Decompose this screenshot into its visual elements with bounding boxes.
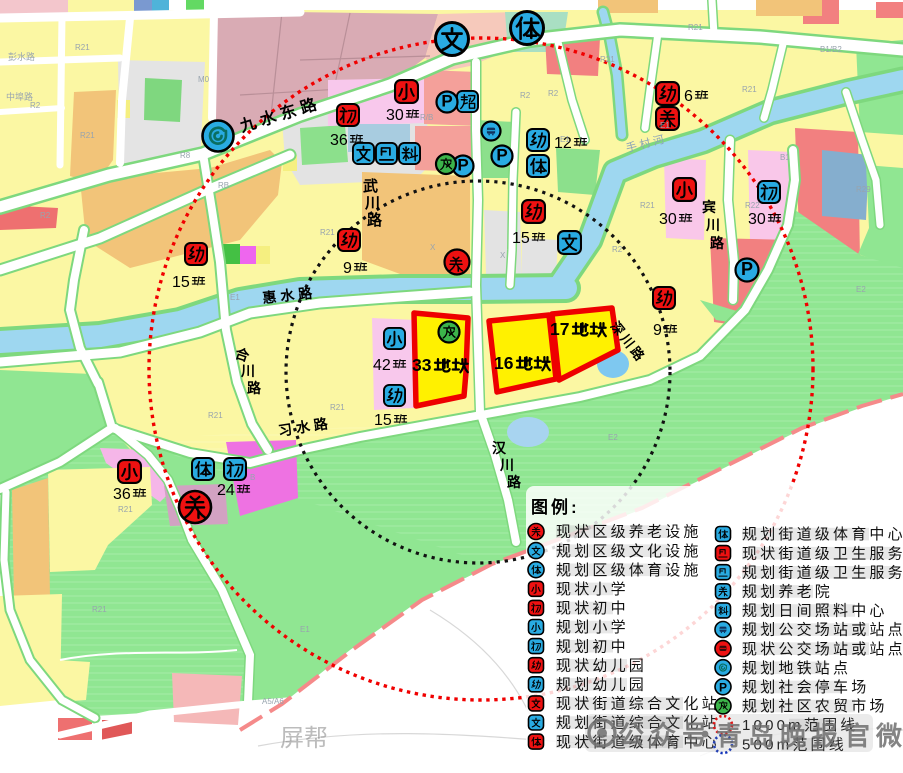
svg-text:中埠路: 中埠路 xyxy=(6,91,33,102)
svg-text:E1: E1 xyxy=(560,135,570,144)
svg-text:R21: R21 xyxy=(330,403,345,412)
svg-text:规划区级文化设施: 规划区级文化设施 xyxy=(556,543,702,560)
svg-text:X: X xyxy=(430,243,436,252)
svg-text:武: 武 xyxy=(363,177,378,195)
svg-text:规划幼儿园: 规划幼儿园 xyxy=(556,677,647,694)
svg-text:屏帮: 屏帮 xyxy=(280,725,328,752)
svg-text:30: 30 xyxy=(748,211,766,228)
svg-text:42: 42 xyxy=(373,357,391,374)
svg-text:P: P xyxy=(457,155,468,174)
svg-text:E1: E1 xyxy=(230,293,240,302)
svg-text:15: 15 xyxy=(512,230,530,247)
svg-text:R21: R21 xyxy=(742,85,757,94)
svg-text:R21: R21 xyxy=(92,605,107,614)
svg-text:B1: B1 xyxy=(780,153,790,162)
svg-text:现状初中: 现状初中 xyxy=(556,600,629,617)
svg-text:R2: R2 xyxy=(612,245,623,254)
svg-text:16: 16 xyxy=(494,353,514,373)
svg-text:R2: R2 xyxy=(548,89,559,98)
svg-text:R2: R2 xyxy=(30,101,41,110)
svg-text:川: 川 xyxy=(240,363,255,379)
svg-text:B: B xyxy=(250,473,255,482)
svg-text:汉: 汉 xyxy=(492,440,507,456)
svg-text:R21: R21 xyxy=(640,201,655,210)
svg-text:规划社区农贸市场: 规划社区农贸市场 xyxy=(742,698,888,715)
svg-text:P: P xyxy=(741,259,753,279)
svg-text:R21: R21 xyxy=(80,131,95,140)
svg-text:36: 36 xyxy=(330,132,348,149)
svg-text:公众号: 公众号 xyxy=(618,720,714,750)
svg-text:24: 24 xyxy=(217,482,235,499)
svg-text:E2: E2 xyxy=(856,285,866,294)
svg-text:规划初中: 规划初中 xyxy=(556,638,629,655)
svg-text:E2: E2 xyxy=(608,433,618,442)
svg-text:B1/B2: B1/B2 xyxy=(820,45,842,54)
svg-text:30: 30 xyxy=(386,107,404,124)
svg-text:9: 9 xyxy=(343,260,352,277)
svg-text:规划日间照料中心: 规划日间照料中心 xyxy=(742,603,888,620)
svg-text:川: 川 xyxy=(499,457,514,473)
svg-text:规划区级体育设施: 规划区级体育设施 xyxy=(556,562,702,579)
svg-text:川: 川 xyxy=(364,195,380,212)
svg-text:36: 36 xyxy=(113,486,131,503)
svg-text:现状小学: 现状小学 xyxy=(556,581,629,598)
svg-text:规划社会停车场: 规划社会停车场 xyxy=(742,679,869,696)
svg-text:规划公交场站或站点: 规划公交场站或站点 xyxy=(742,621,903,639)
svg-text:R2: R2 xyxy=(40,211,51,220)
svg-text:彭水路: 彭水路 xyxy=(8,51,35,62)
svg-text:9: 9 xyxy=(653,322,662,339)
svg-text:现状区级养老设施: 现状区级养老设施 xyxy=(556,524,702,541)
svg-text:R21: R21 xyxy=(320,228,335,237)
svg-text:E1: E1 xyxy=(660,121,670,130)
svg-text:规划小学: 规划小学 xyxy=(556,619,629,636)
svg-text:P: P xyxy=(441,91,452,110)
svg-text:青岛晚报官微: 青岛晚报官微 xyxy=(716,721,903,751)
svg-text:R/B: R/B xyxy=(420,113,433,122)
svg-text:R29: R29 xyxy=(856,185,871,194)
svg-text:M0: M0 xyxy=(198,75,210,84)
svg-text:规划地铁站点: 规划地铁站点 xyxy=(742,660,851,677)
svg-text:R2: R2 xyxy=(520,91,531,100)
svg-text:33: 33 xyxy=(412,355,432,375)
svg-text:现状幼儿园: 现状幼儿园 xyxy=(556,657,647,674)
svg-text:15: 15 xyxy=(374,412,392,429)
svg-text:15: 15 xyxy=(172,274,190,291)
svg-text:规划养老院: 规划养老院 xyxy=(742,583,833,601)
svg-text:图例:: 图例: xyxy=(531,497,580,517)
svg-text:P: P xyxy=(719,680,727,694)
svg-text:X: X xyxy=(500,251,506,260)
svg-text:R21: R21 xyxy=(600,55,615,64)
svg-text:川: 川 xyxy=(705,217,720,233)
svg-text:规划街道级卫生服务中心: 规划街道级卫生服务中心 xyxy=(742,564,903,581)
svg-text:RB: RB xyxy=(218,181,229,190)
svg-text:宾: 宾 xyxy=(702,199,716,215)
svg-text:现状公交场站或站点: 现状公交场站或站点 xyxy=(742,640,903,658)
svg-text:30: 30 xyxy=(659,211,677,228)
svg-text:路: 路 xyxy=(507,474,522,490)
svg-text:路: 路 xyxy=(710,235,725,251)
svg-text:P: P xyxy=(496,145,507,164)
svg-text:R21: R21 xyxy=(118,505,133,514)
svg-text:规划街道级体育中心: 规划街道级体育中心 xyxy=(742,526,903,543)
svg-text:E1: E1 xyxy=(300,625,310,634)
svg-text:R21: R21 xyxy=(75,43,90,52)
svg-text:R21: R21 xyxy=(688,23,703,32)
svg-text:R21: R21 xyxy=(208,411,223,420)
svg-text:现状街道综合文化站: 现状街道综合文化站 xyxy=(556,696,720,713)
svg-text:现状街道级卫生服务中心: 现状街道级卫生服务中心 xyxy=(742,545,903,562)
svg-text:R22: R22 xyxy=(745,201,760,210)
svg-text:A5/A6: A5/A6 xyxy=(262,697,284,706)
svg-text:路: 路 xyxy=(367,211,383,229)
svg-text:R8: R8 xyxy=(180,151,191,160)
svg-text:路: 路 xyxy=(247,380,262,396)
svg-text:17: 17 xyxy=(550,319,569,339)
svg-text:6: 6 xyxy=(684,88,693,105)
